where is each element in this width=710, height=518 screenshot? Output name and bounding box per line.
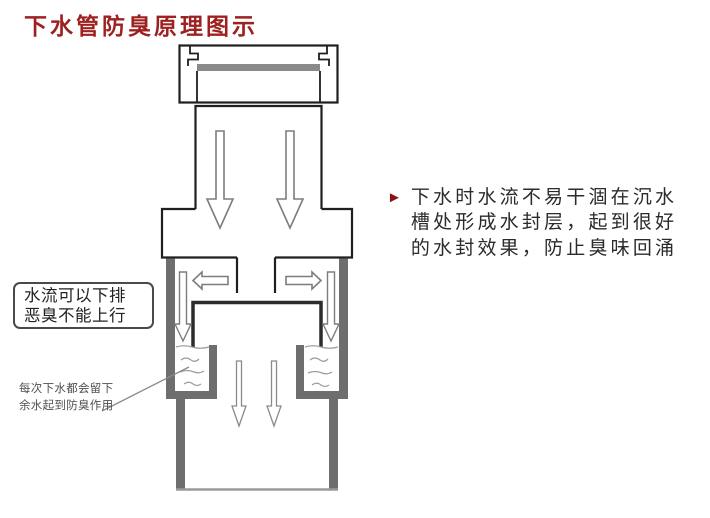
outlet-down-arrow-left-icon (232, 361, 246, 426)
outlet-wall-left (176, 399, 185, 490)
trap-water-right (305, 346, 338, 387)
outer-wall-right (339, 259, 348, 399)
side-down-arrow-left-icon (175, 272, 191, 341)
trap-bottom-left (166, 391, 217, 399)
outlet-wall-right (329, 399, 338, 490)
flow-rule-label-box: 水流可以下排 恶臭不能上行 (13, 282, 154, 329)
annotation-line-1: 下水时水流不易干涸在沉水 (411, 185, 677, 210)
outlet-down-arrow-right-icon (267, 361, 281, 426)
residual-water-note-line-2: 余水起到防臭作用 (19, 398, 113, 415)
water-seal-annotation-text: 下水时水流不易干涸在沉水 槽处形成水封层，起到很好 的水封效果，防止臭味回涌 (411, 185, 677, 261)
residual-water-note: 每次下水都会留下 余水起到防臭作用 (19, 381, 113, 415)
pipe-body-fill (196, 106, 322, 209)
residual-water-note-line-1: 每次下水都会留下 (19, 381, 113, 398)
strainer-plate (197, 64, 320, 71)
annotation-line-3: 的水封效果，防止臭味回涌 (411, 236, 677, 261)
flow-rule-line-1: 水流可以下排 (24, 287, 152, 307)
trap-inner-wall-left (209, 345, 217, 399)
page-title: 下水管防臭原理图示 (24, 7, 258, 41)
note-leader-line (102, 367, 189, 411)
side-down-arrow-right-icon (323, 272, 339, 341)
annotation-line-2: 槽处形成水封层，起到很好 (411, 210, 677, 235)
trap-water-left (176, 346, 209, 386)
water-seal-annotation: ► 下水时水流不易干涸在沉水 槽处形成水封层，起到很好 的水封效果，防止臭味回涌 (387, 185, 677, 261)
page: 下水管防臭原理图示 水流可以下排 恶臭不能上行 每次下水都会留下 余水起到防臭作… (0, 0, 710, 518)
flange-body (162, 209, 352, 258)
trap-inner-wall-right (296, 345, 304, 399)
flow-right-arrow-icon (286, 272, 321, 289)
flow-left-arrow-icon (193, 272, 228, 289)
flow-rule-line-2: 恶臭不能上行 (24, 307, 152, 327)
arrow-bullet-icon: ► (387, 185, 402, 210)
central-channel-walls (237, 258, 275, 294)
strainer-cap (180, 46, 338, 103)
trap-bottom-right (296, 391, 348, 399)
bell-cover (193, 303, 321, 348)
